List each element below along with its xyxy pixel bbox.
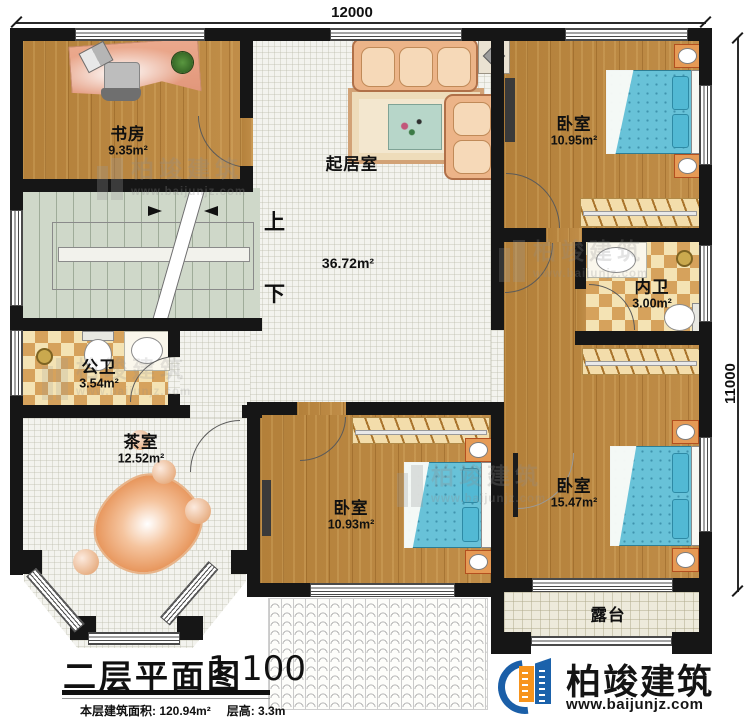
wardrobe-bedroom-tr — [580, 198, 700, 227]
window — [330, 28, 462, 41]
window — [75, 28, 205, 41]
wall — [575, 331, 712, 345]
room-label-living: 起居室 — [326, 156, 379, 173]
nightstand — [674, 154, 701, 178]
wall — [504, 228, 546, 242]
stat-floor-area: 本层建筑面积: 120.94m² — [80, 702, 211, 719]
nightstand — [672, 548, 699, 572]
dimension-line-right — [737, 38, 739, 592]
tv-bedroom-bm — [262, 480, 271, 536]
nightstand — [465, 438, 492, 462]
plan-stats: 本层建筑面积: 120.94m² 层高: 3.3m — [80, 702, 285, 719]
bed-bedroom-bm — [404, 462, 492, 548]
hall-passage-floor — [178, 330, 250, 406]
sofa-cushion — [399, 47, 433, 87]
window — [699, 437, 712, 532]
tea-rug-dot — [73, 549, 99, 575]
sofa-three-seat — [352, 38, 478, 92]
sofa-cushion — [437, 47, 471, 87]
logo-building-blue — [535, 658, 551, 704]
plan-scale: 1:100 — [208, 649, 306, 689]
stair-up-label: 上 — [264, 206, 285, 236]
brand-url: www.baijunjz.com — [566, 696, 703, 713]
pillow — [672, 114, 689, 148]
door-leaf-bedroom-br — [513, 453, 518, 517]
tea-rug-dot — [185, 498, 211, 524]
wall — [491, 28, 504, 330]
title-underline-thin — [62, 698, 270, 699]
stair-arrow-right-icon — [148, 206, 162, 216]
wall — [575, 242, 586, 289]
stair-down-label: 下 — [264, 278, 285, 308]
room-label-inner-bath: 内卫3.00m² — [632, 279, 672, 310]
desk-chair-back — [101, 88, 141, 101]
nightstand — [672, 420, 699, 444]
door-gap-inner-bath — [575, 289, 586, 331]
wardrobe-bedroom-br — [582, 348, 700, 375]
sofa-cushion — [361, 47, 395, 87]
pillow — [672, 76, 689, 110]
wall — [491, 632, 531, 654]
brand-logo-icon — [498, 652, 562, 722]
pillow — [462, 507, 479, 542]
door-gap-bedroom-tr — [546, 228, 582, 242]
wall — [10, 405, 190, 418]
room-label-bedroom-bm: 卧室10.93m² — [328, 500, 375, 531]
floor-plan: 上 下 书房9.35m² — [0, 0, 750, 726]
wall — [10, 318, 262, 331]
wall — [346, 402, 504, 415]
window — [699, 85, 712, 165]
window — [699, 245, 712, 322]
wall — [491, 404, 504, 592]
bay-window — [88, 632, 180, 645]
stat-floor-height: 层高: 3.3m — [227, 702, 286, 719]
bay-post — [177, 616, 203, 640]
window — [565, 28, 688, 41]
inner-bath-shower — [676, 250, 693, 267]
public-bath-shower — [36, 348, 53, 365]
terrace-sliding-door — [532, 578, 673, 592]
title-underline — [62, 690, 270, 695]
door-gap-bedroom-bm — [297, 402, 346, 415]
logo-building-orange — [519, 666, 534, 702]
window — [310, 583, 455, 597]
tv-bedroom-tr — [505, 78, 515, 142]
wall — [168, 331, 180, 357]
pillow — [462, 468, 479, 503]
nightstand — [465, 550, 492, 574]
wall — [673, 578, 712, 592]
room-label-study: 书房9.35m² — [108, 126, 148, 157]
bed-bedroom-tr — [606, 70, 702, 154]
dimension-line-top — [16, 22, 706, 24]
sofa-cushion — [453, 140, 491, 174]
wall — [10, 179, 253, 192]
terrace-rail — [531, 636, 672, 646]
room-label-terrace: 露台 — [591, 607, 626, 624]
pillow — [672, 499, 689, 539]
inner-bath-sink — [596, 247, 636, 273]
dimension-top-value: 12000 — [331, 4, 373, 21]
plant-icon — [172, 52, 193, 73]
wall — [247, 402, 297, 415]
room-label-bedroom-tr: 卧室10.95m² — [551, 116, 598, 147]
window — [10, 330, 23, 396]
bed-bedroom-br — [610, 446, 702, 546]
wall — [672, 632, 712, 654]
wall — [582, 228, 712, 242]
wall — [240, 28, 253, 118]
window — [10, 210, 23, 306]
room-area-living: 36.72m² — [322, 255, 374, 271]
room-label-bedroom-br: 卧室15.47m² — [551, 478, 598, 509]
bay-post — [231, 550, 257, 574]
room-label-tea: 茶室12.52m² — [118, 434, 165, 465]
stair-arrow-left-icon — [204, 206, 218, 216]
sofa-cushion — [453, 102, 491, 136]
pillow — [672, 453, 689, 493]
coffee-table — [388, 104, 442, 150]
stair-center-rail — [58, 247, 250, 262]
dimension-right-value: 11000 — [722, 363, 739, 404]
passage-to-bedrooms — [491, 330, 504, 404]
door-gap-tea — [190, 405, 242, 418]
wall — [491, 578, 532, 592]
nightstand — [674, 44, 701, 68]
room-label-public-bath: 公卫3.54m² — [79, 359, 119, 390]
